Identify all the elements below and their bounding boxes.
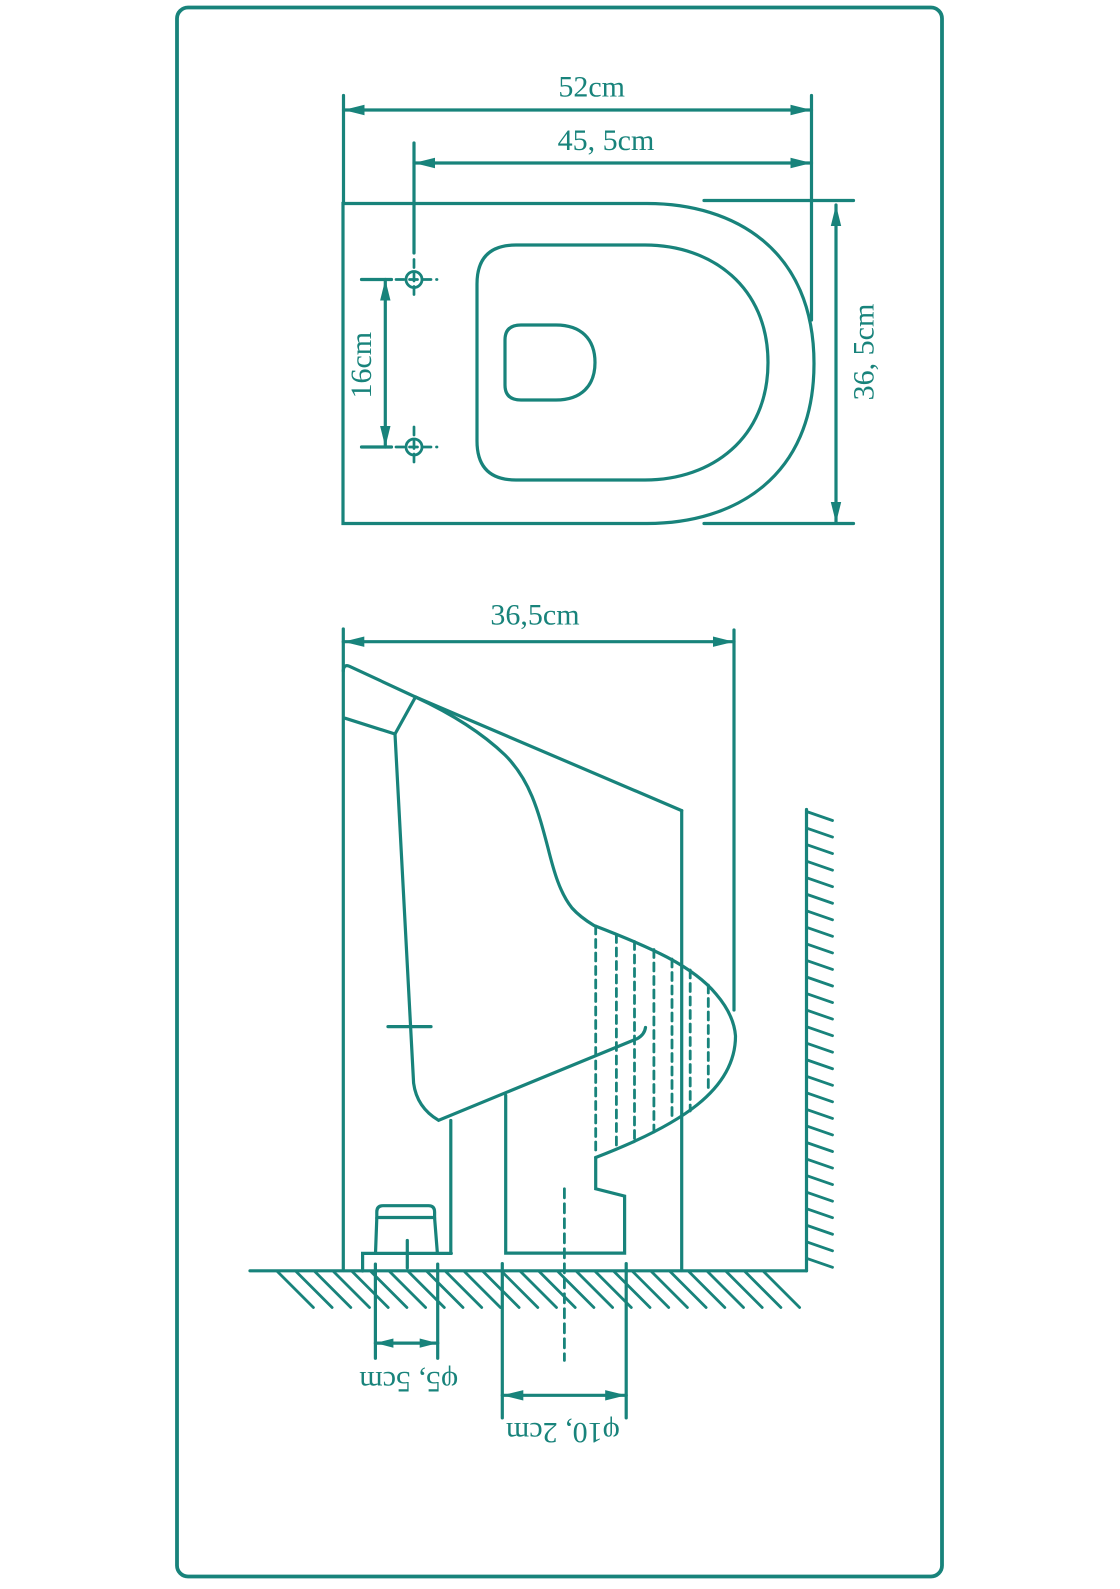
svg-text:52cm: 52cm	[558, 71, 625, 104]
svg-text:36, 5cm: 36, 5cm	[848, 304, 881, 401]
svg-text:45, 5cm: 45, 5cm	[558, 124, 655, 157]
svg-text:φ10, 2cm: φ10, 2cm	[506, 1416, 620, 1449]
svg-text:36,5cm: 36,5cm	[490, 599, 579, 632]
svg-text:φ5, 5cm: φ5, 5cm	[359, 1365, 458, 1398]
svg-text:16cm: 16cm	[345, 332, 378, 399]
